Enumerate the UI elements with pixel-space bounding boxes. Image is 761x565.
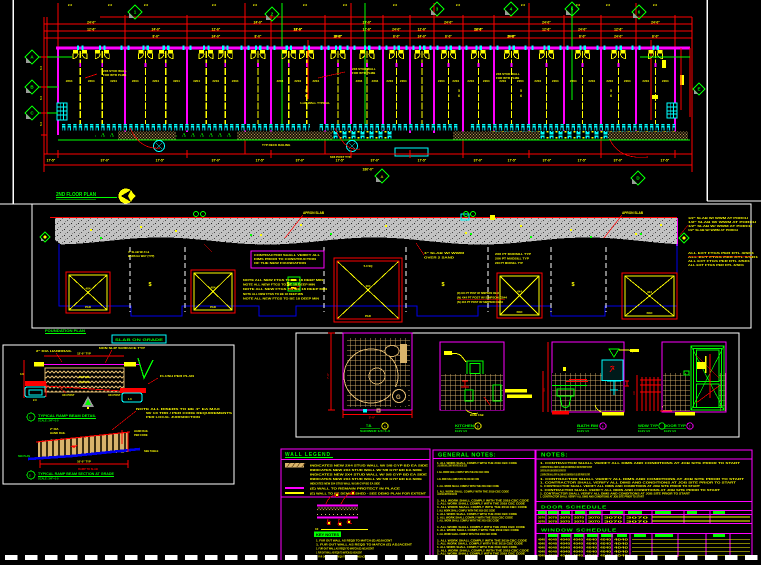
- svg-text:4X4 POST: 4X4 POST: [62, 393, 75, 397]
- svg-text:8'-0": 8'-0": [652, 35, 659, 39]
- svg-text:#204: #204: [152, 79, 159, 83]
- svg-text:180'-0": 180'-0": [362, 168, 373, 172]
- svg-text:SCALE: 3/4"=1-0: SCALE: 3/4"=1-0: [38, 477, 59, 481]
- svg-text:#204: #204: [438, 79, 445, 83]
- svg-text:1-6: 1-6: [128, 397, 132, 401]
- svg-text:NOTE ALL NEW FTGS TO BE 18 DEE: NOTE ALL NEW FTGS TO BE 18 DEEP MIN: [243, 278, 323, 282]
- svg-text:8-6: 8-6: [39, 66, 43, 71]
- svg-text:4X4 POST: 4X4 POST: [108, 393, 121, 397]
- svg-text:1. ALL WORK SHALL COMPLY WITH: 1. ALL WORK SHALL COMPLY WITH THE 2019 C…: [437, 484, 499, 488]
- svg-text:3-6: 3-6: [20, 372, 24, 376]
- svg-text:INDICATES NEW 2X4 STUD WALL W/: INDICATES NEW 2X4 STUD WALL W/ 5/8 GYP B…: [310, 473, 427, 477]
- svg-text:TYP DECK RAILING: TYP DECK RAILING: [262, 143, 291, 147]
- svg-text:INDICATES NEW 2X4 STUD WALL W/: INDICATES NEW 2X4 STUD WALL W/ 5/8 GYP B…: [310, 468, 422, 472]
- svg-text:APRON SLAB: APRON SLAB: [303, 211, 325, 215]
- svg-text:12'-6": 12'-6": [87, 28, 96, 32]
- svg-text:$: $: [441, 282, 444, 288]
- svg-text:17'-5": 17'-5": [578, 159, 587, 163]
- svg-text:2-0: 2-0: [68, 3, 73, 7]
- svg-text:ELEV 1/4: ELEV 1/4: [577, 429, 589, 433]
- svg-text:ALL EXT FTGS PER DTL 3/SD1: ALL EXT FTGS PER DTL 3/SD1: [688, 251, 755, 255]
- svg-text:10: 10: [315, 527, 319, 531]
- svg-text:1/2" SLAB W/ WWM AT PORCH: 1/2" SLAB W/ WWM AT PORCH: [688, 224, 752, 228]
- svg-text:#204: #204: [386, 79, 393, 83]
- svg-text:24'-0": 24'-0": [254, 21, 263, 25]
- svg-text:PAD: PAD: [85, 305, 91, 309]
- svg-text:2-0: 2-0: [521, 3, 526, 7]
- svg-text:3070: 3070: [538, 520, 545, 524]
- svg-text:#204: #204: [110, 79, 117, 83]
- svg-text:2-0: 2-0: [33, 398, 37, 402]
- svg-text:NOTE ALL NEW FTGS TO BE 18 DEE: NOTE ALL NEW FTGS TO BE 18 DEEP MIN: [243, 287, 327, 291]
- svg-text:1. ALL WORK SHALL COMPLY WITH: 1. ALL WORK SHALL COMPLY WITH THE 2019 C…: [437, 470, 489, 474]
- svg-text:8'-0": 8'-0": [153, 35, 160, 39]
- svg-text:SLAB ON GRADE: SLAB ON GRADE: [115, 338, 164, 342]
- svg-text:12'-6": 12'-6": [614, 28, 623, 32]
- svg-text:G: G: [396, 395, 401, 401]
- svg-text:17'-5": 17'-5": [508, 159, 517, 163]
- svg-text:FOR WTR PLMB: FOR WTR PLMB: [496, 76, 520, 80]
- svg-text:#204: #204: [534, 79, 541, 83]
- svg-text:BASE CAB: BASE CAB: [470, 413, 484, 417]
- svg-text:12'-0" TYP: 12'-0" TYP: [77, 352, 91, 356]
- svg-text:PER LOCAL JURISDICTION: PER LOCAL JURISDICTION: [146, 415, 200, 419]
- svg-text:7'-0": 7'-0": [326, 373, 330, 379]
- svg-text:BARS EA WAY (TYP): BARS EA WAY (TYP): [128, 254, 154, 258]
- svg-text:$: $: [148, 282, 151, 288]
- svg-text:SEE TABLE: SEE TABLE: [144, 449, 159, 453]
- svg-text:WINDOW SCHEDULE: WINDOW SCHEDULE: [541, 528, 617, 533]
- svg-text:HAND RAIL: HAND RAIL: [50, 431, 66, 435]
- svg-text:2X6 PT MUDSILL TYP: 2X6 PT MUDSILL TYP: [495, 252, 531, 256]
- svg-text:24'-0": 24'-0": [392, 28, 401, 32]
- svg-text:24'-0": 24'-0": [152, 28, 161, 32]
- svg-text:2-0: 2-0: [303, 3, 308, 7]
- svg-text:8'-0": 8'-0": [445, 35, 452, 39]
- svg-text:GENERAL NOTES:: GENERAL NOTES:: [438, 453, 496, 459]
- svg-text:HAND RAIL: HAND RAIL: [134, 429, 149, 433]
- svg-text:(E) WALL TO REMAIN PROTECT IN: (E) WALL TO REMAIN PROTECT IN PLACE: [310, 487, 400, 491]
- svg-text:1. ALL WORK SHALL COMPLY WITH: 1. ALL WORK SHALL COMPLY WITH THE 2019 C…: [437, 492, 457, 496]
- svg-text:6: 6: [610, 94, 612, 98]
- svg-text:DIMS PRIOR TO CONSTRUCTION: DIMS PRIOR TO CONSTRUCTION: [254, 257, 316, 261]
- svg-text:2-0: 2-0: [456, 3, 461, 7]
- svg-text:#204: #204: [193, 79, 200, 83]
- svg-text:ALL EXT FTGS PER DTL 3/SD1: ALL EXT FTGS PER DTL 3/SD1: [688, 263, 745, 267]
- svg-text:#204: #204: [452, 79, 459, 83]
- svg-text:1. FUR OUT WALL AS REQD TO MAT: 1. FUR OUT WALL AS REQD TO MATCH (E) ADJ…: [316, 555, 368, 559]
- svg-text:2" DIA HANDRAIL: 2" DIA HANDRAIL: [36, 349, 72, 353]
- svg-text:1. ALL WORK SHALL COMPLY WITH: 1. ALL WORK SHALL COMPLY WITH THE 2019 C…: [437, 552, 525, 556]
- svg-text:SHOWER 1/4=1-0: SHOWER 1/4=1-0: [360, 429, 391, 433]
- svg-text:1. ALL WORK SHALL COMPLY WITH: 1. ALL WORK SHALL COMPLY WITH THE 2019 C…: [437, 464, 467, 468]
- svg-text:17'-5": 17'-5": [156, 159, 165, 163]
- svg-text:#204: #204: [173, 79, 180, 83]
- svg-text:3070: 3070: [626, 520, 649, 524]
- svg-text:8'-0": 8'-0": [393, 35, 400, 39]
- svg-text:17'-5": 17'-5": [47, 159, 56, 163]
- svg-text:WDW TYP: WDW TYP: [638, 424, 659, 428]
- svg-text:17'-5": 17'-5": [256, 159, 265, 163]
- svg-text:1/2" SLAB W/ WWM AT PORCH: 1/2" SLAB W/ WWM AT PORCH: [688, 228, 738, 232]
- svg-text:FOR WTR PLMB: FOR WTR PLMB: [103, 73, 127, 77]
- svg-text:TYPICAL RAMP BEAM DETAIL: TYPICAL RAMP BEAM DETAIL: [38, 414, 96, 418]
- svg-text:2-0: 2-0: [212, 3, 217, 7]
- svg-text:#204: #204: [372, 79, 379, 83]
- svg-text:#204: #204: [294, 79, 301, 83]
- svg-text:8'-0": 8'-0": [508, 35, 515, 39]
- svg-text:ELEV 1/4: ELEV 1/4: [455, 429, 467, 433]
- svg-text:ALL EXT FTGS PER DTL 3/SD1: ALL EXT FTGS PER DTL 3/SD1: [688, 259, 751, 263]
- svg-text:ALL EXT FTGS PER DTL 3/SD1: ALL EXT FTGS PER DTL 3/SD1: [688, 255, 759, 259]
- svg-text:24'-0": 24'-0": [87, 21, 96, 25]
- svg-text:TYPICAL RAMP BEAM SECTION AT G: TYPICAL RAMP BEAM SECTION AT GRADE: [38, 472, 115, 476]
- svg-text:5: 5: [610, 89, 612, 93]
- svg-text:1. CONTRACTOR SHALL VERIFY ALL: 1. CONTRACTOR SHALL VERIFY ALL DIMS AND …: [540, 473, 590, 477]
- svg-text:12'-6": 12'-6": [474, 28, 483, 32]
- svg-text:DOOR SCHEDULE: DOOR SCHEDULE: [541, 505, 607, 510]
- svg-text:12'-6": 12'-6": [212, 28, 221, 32]
- svg-text:6: 6: [520, 94, 522, 98]
- svg-text:37'-0": 37'-0": [474, 159, 483, 163]
- svg-text:#204: #204: [662, 79, 669, 83]
- svg-text:17'-5": 17'-5": [336, 159, 345, 163]
- svg-text:APRON SLAB: APRON SLAB: [622, 211, 644, 215]
- svg-text:3070: 3070: [560, 520, 571, 524]
- svg-text:1. ALL WORK SHALL COMPLY WITH: 1. ALL WORK SHALL COMPLY WITH THE 2019 C…: [437, 519, 499, 523]
- svg-text:#204: #204: [212, 79, 219, 83]
- svg-text:24'-0": 24'-0": [542, 21, 551, 25]
- svg-text:#204: #204: [624, 79, 631, 83]
- svg-text:RAMP TO SLAB: RAMP TO SLAB: [78, 467, 98, 471]
- svg-text:SEE PLAN: SEE PLAN: [18, 455, 30, 458]
- svg-text:37'-0": 37'-0": [543, 159, 552, 163]
- svg-text:3070: 3070: [588, 520, 601, 524]
- svg-text:4X4: 4X4: [211, 286, 216, 290]
- svg-text:4X4: 4X4: [647, 290, 652, 294]
- svg-text:@16 OC: @16 OC: [78, 380, 90, 384]
- svg-text:2-0: 2-0: [253, 3, 258, 7]
- svg-text:DOOR TYP: DOOR TYP: [664, 424, 687, 428]
- svg-text:6: 6: [305, 94, 307, 98]
- svg-text:BATH RM: BATH RM: [577, 424, 598, 428]
- svg-text:#204: #204: [570, 79, 577, 83]
- svg-text:#204: #204: [467, 79, 474, 83]
- svg-text:2-0: 2-0: [108, 3, 113, 7]
- svg-text:37'-0": 37'-0": [614, 159, 623, 163]
- svg-text:24'-0": 24'-0": [212, 35, 221, 39]
- svg-text:A: A: [381, 174, 384, 179]
- svg-text:SCALE: 3/4"=1-0: SCALE: 3/4"=1-0: [38, 419, 59, 423]
- svg-text:2X6 PT MUDSILL TYP: 2X6 PT MUDSILL TYP: [495, 261, 523, 265]
- svg-text:4X4: 4X4: [86, 287, 91, 291]
- svg-text:10'-5" TYP: 10'-5" TYP: [77, 460, 91, 464]
- svg-text:8'-0": 8'-0": [579, 35, 586, 39]
- svg-text:1/2" SLAB W/ WWM AT PORCH: 1/2" SLAB W/ WWM AT PORCH: [688, 216, 748, 220]
- svg-text:12'-6": 12'-6": [294, 28, 303, 32]
- svg-text:FOUNDATION PLAN: FOUNDATION PLAN: [45, 329, 85, 333]
- svg-text:24'-0": 24'-0": [363, 21, 372, 25]
- svg-text:PAD: PAD: [210, 305, 216, 309]
- svg-text:5: 5: [520, 89, 522, 93]
- svg-text:PER CODE: PER CODE: [134, 433, 148, 437]
- svg-text:#204: #204: [588, 79, 595, 83]
- svg-text:$: $: [571, 282, 574, 288]
- svg-text:4040: 4040: [538, 554, 545, 558]
- svg-text:#204: #204: [606, 79, 613, 83]
- svg-text:FLUSH PER PLAN: FLUSH PER PLAN: [160, 374, 194, 378]
- svg-text:12'-6": 12'-6": [363, 28, 372, 32]
- svg-text:2-0: 2-0: [606, 3, 611, 7]
- svg-text:NOTES:: NOTES:: [541, 453, 568, 459]
- svg-text:37'-0": 37'-0": [212, 159, 221, 163]
- svg-text:2-0: 2-0: [393, 3, 398, 7]
- svg-text:12'-6": 12'-6": [542, 28, 551, 32]
- svg-text:#204: #204: [232, 79, 239, 83]
- svg-text:KEY NOTES: KEY NOTES: [316, 533, 340, 537]
- svg-text:3'-0": 3'-0": [369, 416, 376, 420]
- svg-text:24'-0": 24'-0": [614, 35, 623, 39]
- svg-text:6: 6: [458, 94, 460, 98]
- svg-text:INDICATES NEW 2X4 STUD WALL W/: INDICATES NEW 2X4 STUD WALL W/ 5/8 GYP B…: [310, 464, 428, 468]
- svg-text:8'-0": 8'-0": [335, 35, 342, 39]
- svg-text:5: 5: [305, 89, 307, 93]
- svg-text:4X8 BM: 4X8 BM: [79, 375, 90, 379]
- svg-text:NOTE ALL NEW FTGS TO BE 18 DEE: NOTE ALL NEW FTGS TO BE 18 DEEP MIN: [243, 283, 315, 287]
- svg-text:#204: #204: [400, 79, 407, 83]
- svg-text:37'-0": 37'-0": [371, 159, 380, 163]
- svg-text:3070: 3070: [604, 520, 623, 524]
- svg-text:#204: #204: [132, 79, 139, 83]
- svg-text:5-0 SQ: 5-0 SQ: [364, 264, 374, 268]
- svg-text:#204: #204: [552, 79, 559, 83]
- svg-text:INDICATES NEW 2X4 STUD WALL W/: INDICATES NEW 2X4 STUD WALL W/ 5/8 GYP B…: [310, 477, 422, 481]
- svg-text:4" SLAB W/ #4 &: 4" SLAB W/ #4 &: [128, 250, 149, 254]
- svg-text:2X6 PT MUDSILL TYP: 2X6 PT MUDSILL TYP: [495, 256, 529, 260]
- svg-text:2-0: 2-0: [653, 3, 658, 7]
- svg-text:#204: #204: [356, 79, 363, 83]
- svg-text:17'-5": 17'-5": [661, 159, 670, 163]
- svg-text:2-0: 2-0: [343, 3, 348, 7]
- svg-text:E: E: [697, 87, 700, 92]
- svg-text:1. ALL WORK SHALL COMPLY WITH: 1. ALL WORK SHALL COMPLY WITH THE 2019 C…: [437, 532, 497, 536]
- svg-text:#204: #204: [277, 79, 284, 83]
- svg-text:37'-0": 37'-0": [296, 159, 305, 163]
- svg-text:PAD: PAD: [647, 311, 653, 315]
- svg-text:KITCHEN: KITCHEN: [455, 424, 475, 428]
- svg-text:#204: #204: [312, 79, 319, 83]
- svg-text:$: $: [286, 282, 289, 288]
- svg-text:24'-0": 24'-0": [444, 21, 453, 25]
- svg-text:4X4: 4X4: [517, 290, 522, 294]
- svg-text:5: 5: [458, 89, 460, 93]
- svg-text:PAD: PAD: [365, 314, 371, 318]
- svg-text:WALL LEGEND: WALL LEGEND: [285, 452, 331, 458]
- svg-text:ELEV 1/4: ELEV 1/4: [638, 429, 650, 433]
- svg-text:(N) 4X4 PT POST W/ SIMPSON CB4: (N) 4X4 PT POST W/ SIMPSON CB44: [457, 300, 503, 304]
- svg-text:2-0: 2-0: [144, 3, 149, 7]
- svg-text:37'-0": 37'-0": [101, 159, 110, 163]
- svg-text:3-6: 3-6: [632, 391, 636, 395]
- svg-text:(E) WALL TO BE DEMOLISHED - SE: (E) WALL TO BE DEMOLISHED - SEE DEMO PLA…: [310, 492, 426, 496]
- svg-text:1. CONTRACTOR SHALL VERIFY ALL: 1. CONTRACTOR SHALL VERIFY ALL DIMS AND …: [540, 495, 644, 499]
- svg-text:8-6: 8-6: [39, 122, 43, 127]
- svg-text:12'-6": 12'-6": [418, 28, 427, 32]
- svg-text:OVER 2 SAND: OVER 2 SAND: [424, 256, 454, 260]
- svg-text:#204: #204: [483, 79, 490, 83]
- svg-text:NOTE ALL NEW FTGS TO BE 18 DEE: NOTE ALL NEW FTGS TO BE 18 DEEP MIN: [243, 296, 319, 300]
- svg-text:PAD: PAD: [517, 310, 523, 314]
- svg-text:INDICATES NEW 2X4 STUD WALL W/: INDICATES NEW 2X4 STUD WALL W/ 5/8 GYP B…: [310, 482, 380, 486]
- svg-text:17'-5": 17'-5": [418, 159, 427, 163]
- svg-text:4-0: 4-0: [542, 388, 546, 392]
- svg-text:1/2" SLAB W/ WWM AT PORCH: 1/2" SLAB W/ WWM AT PORCH: [688, 220, 756, 224]
- svg-text:#204: #204: [642, 79, 649, 83]
- svg-text:T.B.: T.B.: [366, 424, 372, 428]
- svg-text:OF THE NEW FOUNDATION: OF THE NEW FOUNDATION: [254, 261, 306, 265]
- svg-text:NON SLIP SURFACE TYP: NON SLIP SURFACE TYP: [99, 346, 145, 350]
- svg-text:3070: 3070: [574, 520, 585, 524]
- svg-text:NOTE ALL NEW FTGS TO BE 18 DEE: NOTE ALL NEW FTGS TO BE 18 DEEP MIN: [243, 292, 303, 296]
- svg-text:3070: 3070: [548, 520, 558, 524]
- svg-text:#204: #204: [66, 79, 73, 83]
- svg-text:24'-0": 24'-0": [578, 28, 587, 32]
- svg-text:24'-0": 24'-0": [418, 35, 427, 39]
- svg-text:1. ALL WORK SHALL COMPLY WITH: 1. ALL WORK SHALL COMPLY WITH THE 2019 C…: [437, 477, 479, 481]
- svg-text:8-6: 8-6: [39, 96, 43, 101]
- svg-text:CONTRACTOR SHALL VERIFY ALL: CONTRACTOR SHALL VERIFY ALL: [254, 253, 321, 257]
- svg-text:24'-0": 24'-0": [651, 21, 660, 25]
- svg-text:1-HR WALL TYPICAL: 1-HR WALL TYPICAL: [300, 101, 330, 105]
- svg-text:8'-0": 8'-0": [255, 35, 262, 39]
- svg-text:ELEV 1/4: ELEV 1/4: [664, 429, 676, 433]
- svg-text:4X4: 4X4: [366, 284, 371, 288]
- svg-text:#204: #204: [88, 79, 95, 83]
- svg-text:(N) 4X4 PT POST W/ SIMPSON CB4: (N) 4X4 PT POST W/ SIMPSON CB44: [457, 291, 499, 295]
- svg-text:FOR WTR PLMB: FOR WTR PLMB: [352, 71, 376, 75]
- svg-text:4" SLAB W/ WWM: 4" SLAB W/ WWM: [424, 251, 465, 255]
